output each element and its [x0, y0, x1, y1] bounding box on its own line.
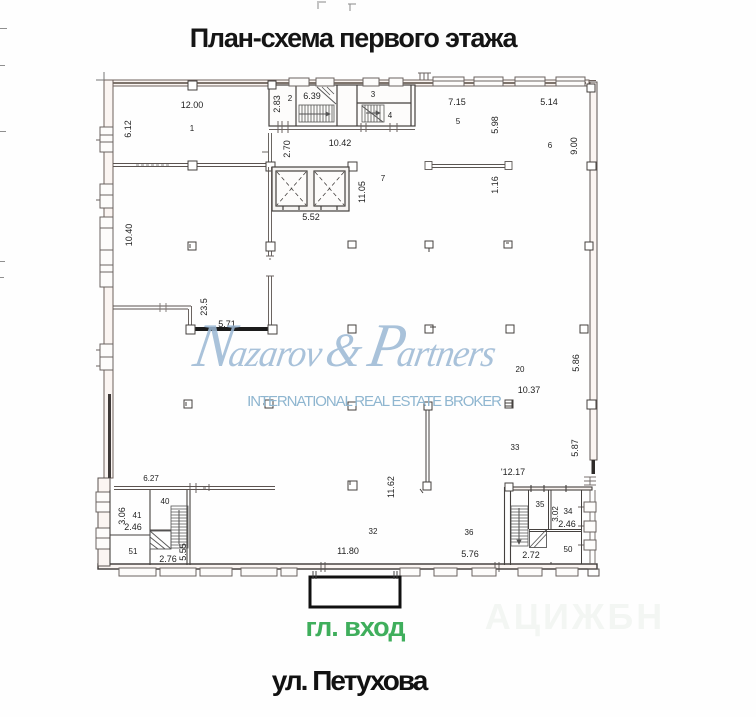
svg-text:5.98: 5.98 [490, 116, 500, 134]
svg-text:3: 3 [371, 90, 376, 99]
svg-text:6: 6 [548, 141, 553, 150]
svg-text:5.14: 5.14 [540, 97, 558, 107]
svg-text:INTERNATIONAL REAL ESTATE BROK: INTERNATIONAL REAL ESTATE BROKER [247, 393, 502, 410]
svg-text:35: 35 [536, 500, 545, 509]
svg-text:2.83: 2.83 [272, 95, 282, 113]
svg-text:5.87: 5.87 [570, 439, 580, 457]
svg-text:2.46: 2.46 [558, 519, 576, 529]
svg-text:6.27: 6.27 [143, 474, 159, 483]
svg-text:1.16: 1.16 [490, 176, 500, 194]
svg-text:12.00: 12.00 [181, 100, 204, 110]
svg-text:11.80: 11.80 [337, 546, 359, 556]
svg-text:34: 34 [564, 507, 573, 516]
svg-text:гл. вход: гл. вход [306, 612, 406, 642]
svg-text:40: 40 [161, 497, 170, 506]
svg-text:4: 4 [388, 111, 393, 120]
svg-text:41: 41 [133, 511, 142, 520]
svg-text:10.40: 10.40 [124, 224, 134, 247]
svg-text:6.39: 6.39 [303, 91, 321, 101]
svg-text:7: 7 [381, 174, 386, 183]
svg-text:'12.17: '12.17 [501, 467, 525, 477]
svg-text:ул. Петухова: ул. Петухова [272, 665, 429, 696]
svg-text:7.15: 7.15 [448, 97, 466, 107]
svg-text:11.05: 11.05 [357, 181, 367, 203]
svg-text:2.46: 2.46 [124, 522, 142, 532]
svg-text:36: 36 [465, 528, 474, 537]
svg-text:АЦИЖБН: АЦИЖБН [485, 596, 666, 637]
svg-text:10.37: 10.37 [518, 385, 541, 395]
svg-text:9.00: 9.00 [569, 137, 579, 155]
svg-text:План-схема первого этажа: План-схема первого этажа [190, 23, 519, 53]
svg-text:51: 51 [129, 547, 138, 556]
svg-text:5.86: 5.86 [571, 354, 581, 372]
svg-text:5.55: 5.55 [178, 543, 188, 561]
svg-text:20: 20 [516, 365, 525, 374]
svg-text:5.76: 5.76 [461, 549, 479, 559]
svg-text:2.72: 2.72 [522, 550, 540, 560]
svg-text:2: 2 [288, 94, 293, 103]
svg-text:10.42: 10.42 [329, 138, 352, 148]
svg-text:6.12: 6.12 [123, 120, 133, 138]
svg-text:11.62: 11.62 [386, 476, 396, 498]
svg-text:5.52: 5.52 [302, 212, 320, 222]
svg-text:33: 33 [511, 443, 520, 452]
svg-text:2.70: 2.70 [282, 140, 292, 158]
svg-text:32: 32 [369, 527, 378, 536]
svg-text:50: 50 [564, 545, 573, 554]
svg-text:1: 1 [190, 124, 195, 133]
svg-text:2.76: 2.76 [159, 554, 177, 564]
svg-text:5: 5 [456, 117, 461, 126]
